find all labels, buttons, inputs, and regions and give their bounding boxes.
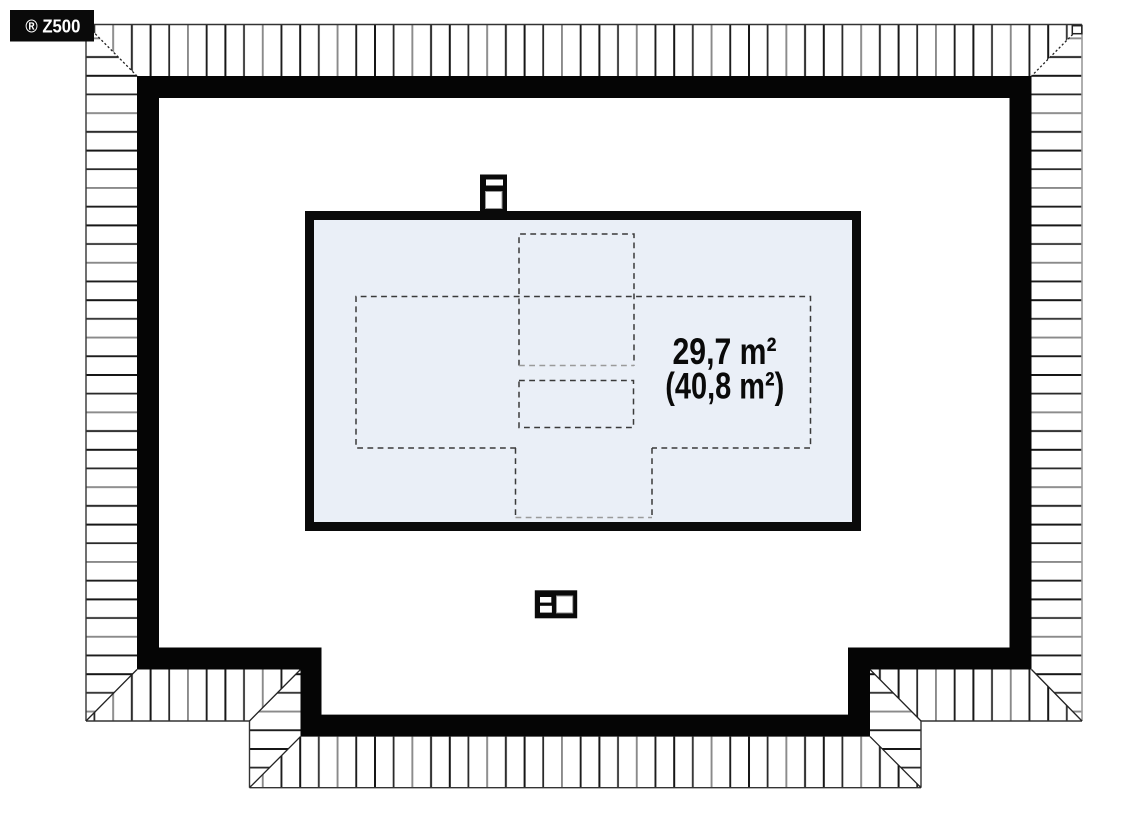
svg-text:® Z500: ® Z500 xyxy=(25,16,80,37)
svg-text:(40,8 m²): (40,8 m²) xyxy=(665,365,784,407)
